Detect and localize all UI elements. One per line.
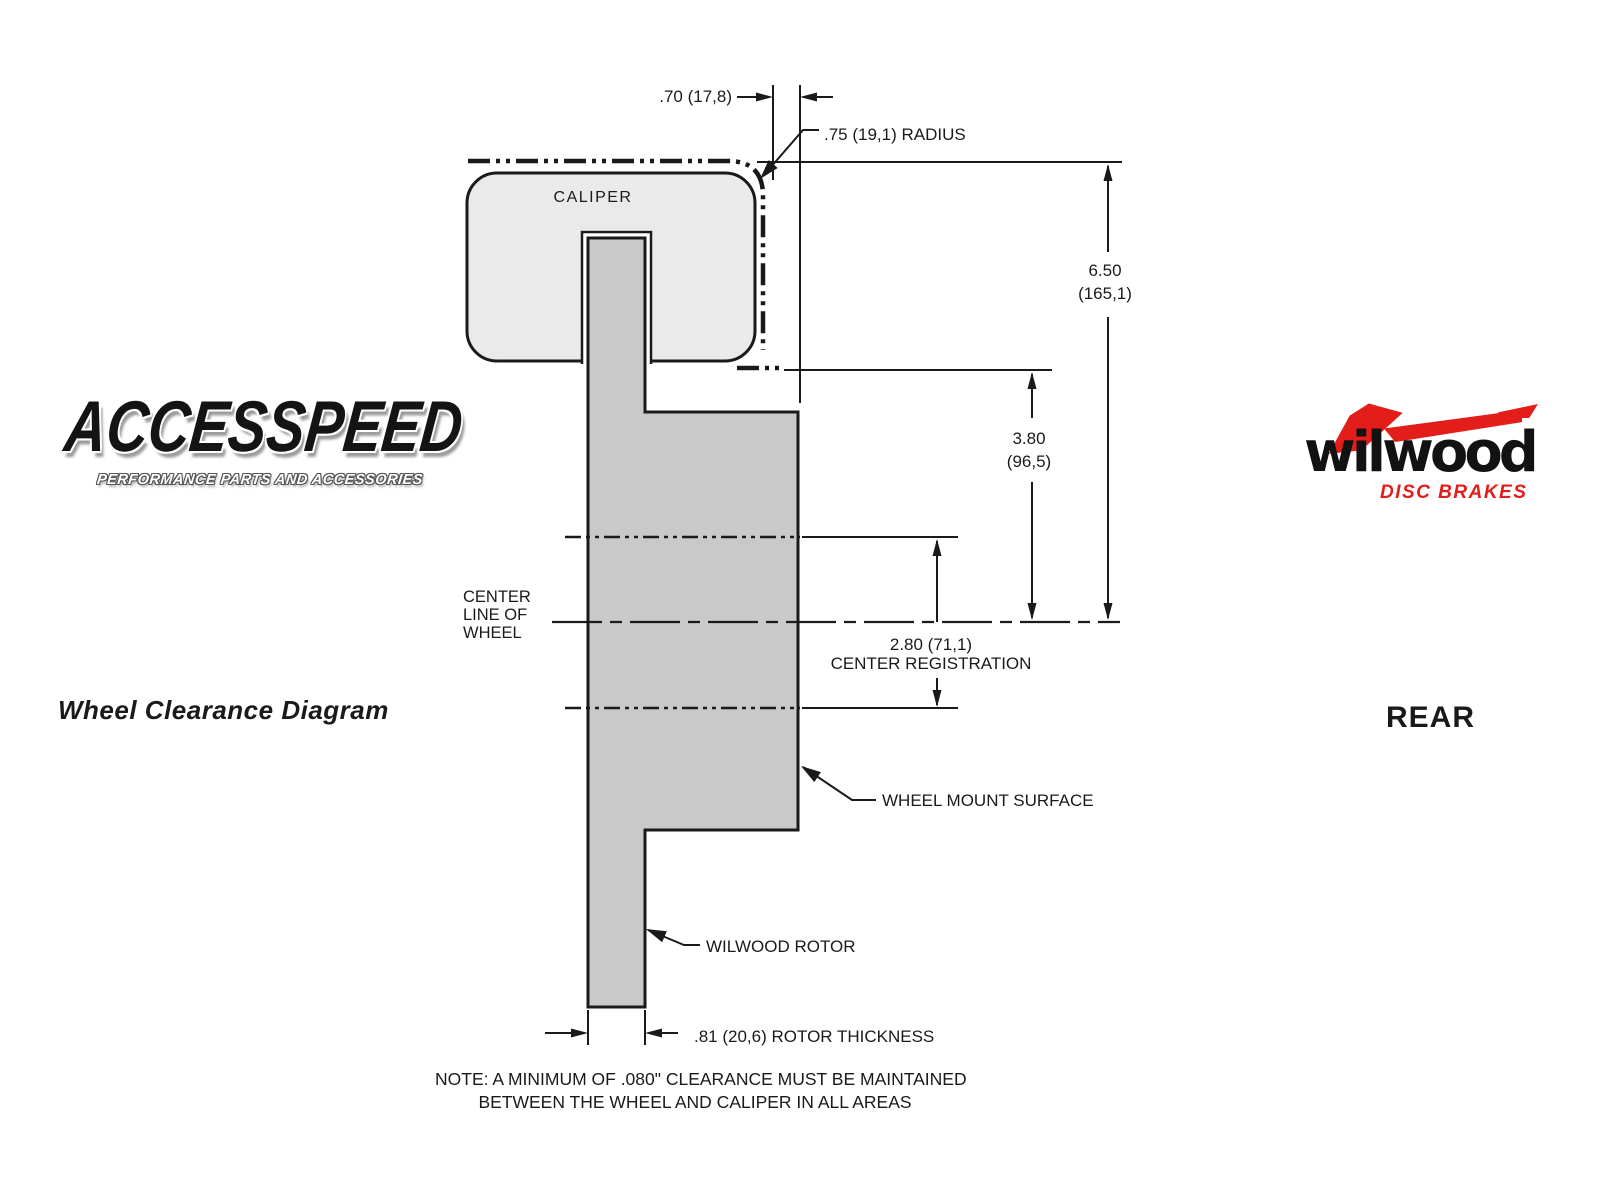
wilwood-wordmark: wilwood: [1304, 420, 1535, 485]
dimension-metric: (96,5): [970, 451, 1088, 474]
note-line: NOTE: A MINIMUM OF .080" CLEARANCE MUST …: [435, 1068, 955, 1091]
accesspeed-tagline: PERFORMANCE PARTS AND ACCESSORIES: [96, 472, 424, 488]
accesspeed-logo: ACCESSPEED PERFORMANCE PARTS AND ACCESSO…: [55, 392, 435, 507]
centerline-label-line: CENTER: [463, 588, 531, 606]
dimension-radius: .75 (19,1) RADIUS: [824, 125, 966, 145]
clearance-diagram-drawing: [0, 0, 1600, 1200]
centerline-label: CENTER LINE OF WHEEL: [463, 588, 531, 642]
dimension-rotor-thickness: .81 (20,6) ROTOR THICKNESS: [694, 1027, 934, 1047]
centerline-label-line: WHEEL: [463, 624, 531, 642]
wilwood-tagline: DISC BRAKES: [1380, 482, 1527, 504]
wilwood-logo: wilwood DISC BRAKES: [1288, 398, 1573, 513]
dimension-value: 6.50: [1046, 260, 1164, 283]
dimension-mount-to-top: 6.50 (165,1): [1046, 260, 1164, 305]
wheel-clearance-diagram-page: CALIPER .70 (17,8) .75 (19,1) RADIUS 6.5…: [0, 0, 1600, 1200]
caliper-label: CALIPER: [528, 188, 658, 207]
dimension-metric: (165,1): [1046, 283, 1164, 306]
wilwood-rotor-label: WILWOOD ROTOR: [706, 937, 856, 957]
dimension-mount-to-hat: 3.80 (96,5): [970, 428, 1088, 473]
dimension-value: 2.80 (71,1): [793, 636, 1069, 655]
note-line: BETWEEN THE WHEEL AND CALIPER IN ALL ARE…: [435, 1091, 955, 1114]
diagram-title: Wheel Clearance Diagram: [58, 695, 389, 726]
clearance-note: NOTE: A MINIMUM OF .080" CLEARANCE MUST …: [435, 1068, 955, 1113]
dimension-center-registration: 2.80 (71,1) CENTER REGISTRATION: [793, 636, 1069, 673]
dimension-value: 3.80: [970, 428, 1088, 451]
accesspeed-wordmark: ACCESSPEED: [61, 386, 467, 468]
wheel-mount-surface-label: WHEEL MOUNT SURFACE: [882, 791, 1094, 811]
position-label-rear: REAR: [1386, 700, 1475, 736]
centerline-label-line: LINE OF: [463, 606, 531, 624]
wilwood-swoosh-icon: [1498, 404, 1538, 418]
dimension-caption: CENTER REGISTRATION: [793, 655, 1069, 674]
dimension-caliper-overhang: .70 (17,8): [618, 87, 732, 107]
